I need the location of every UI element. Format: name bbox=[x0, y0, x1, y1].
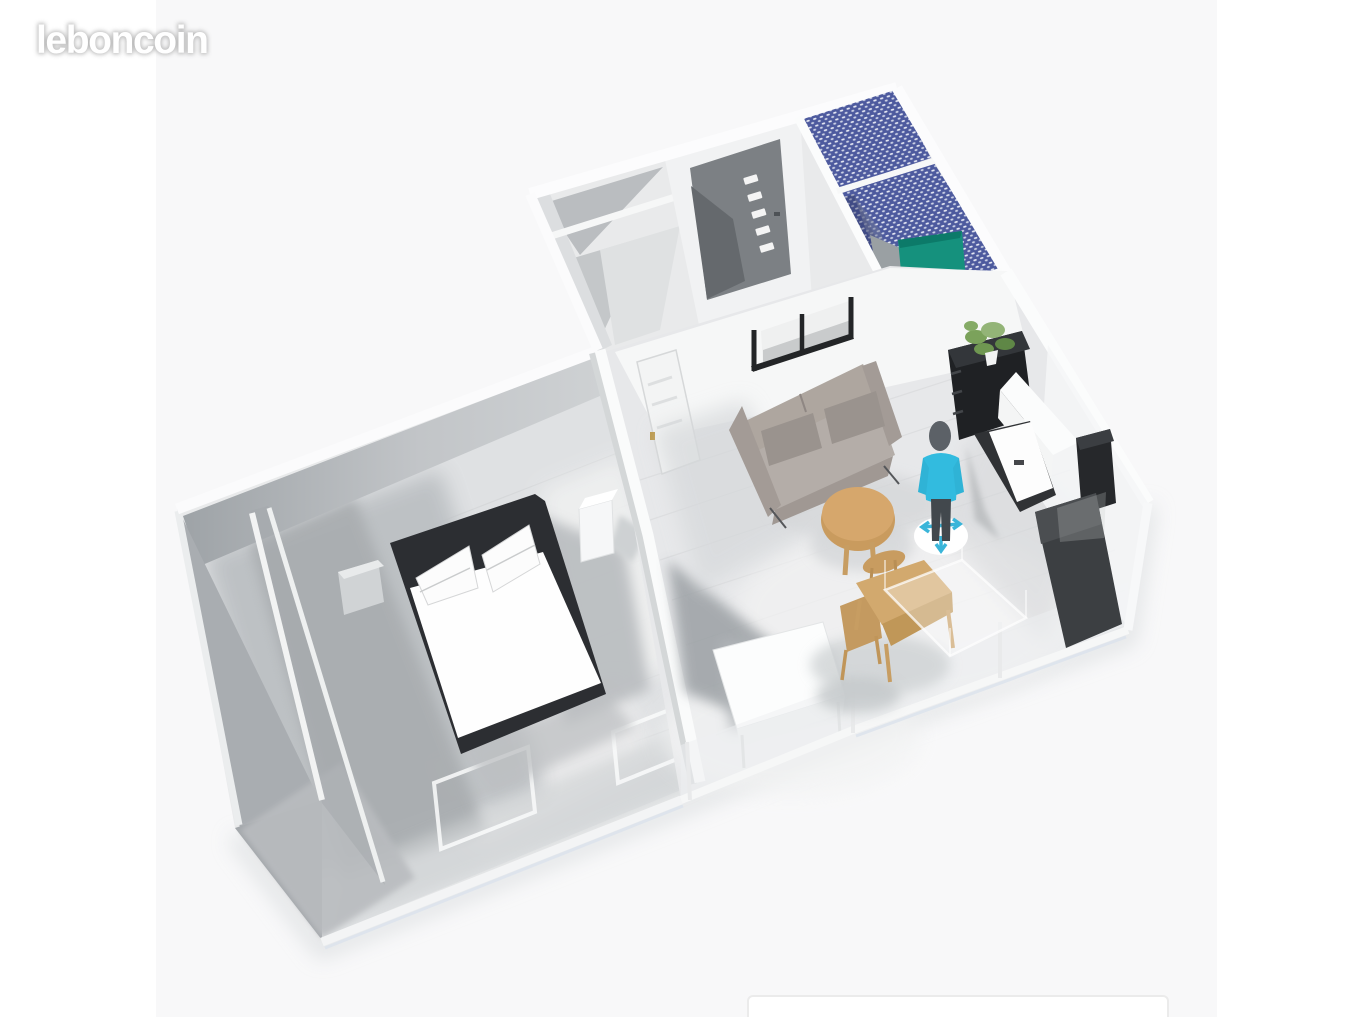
svg-text:leboncoin: leboncoin bbox=[36, 19, 208, 62]
